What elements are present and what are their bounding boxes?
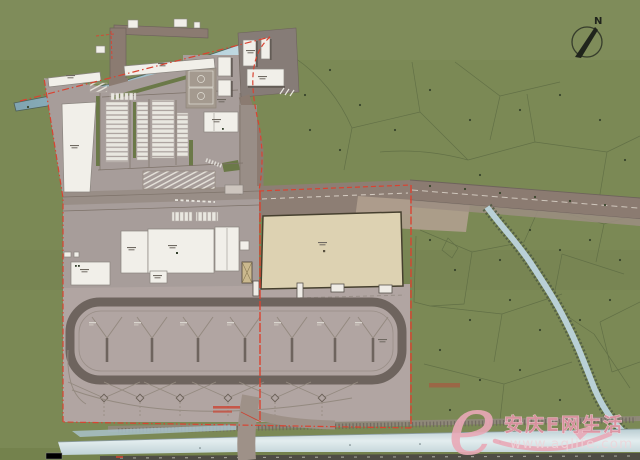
basketball-courts <box>186 68 216 108</box>
building-workshop <box>204 112 238 132</box>
watermark-url-text: www.aqlife.com <box>510 436 634 452</box>
river-crossing-road <box>246 396 251 460</box>
building-cluster-a <box>121 231 148 273</box>
site-plan-svg: N e 安庆E网生活 www.aqlife.com <box>0 0 640 460</box>
compass-north-label: N <box>594 16 602 27</box>
gatehouse-kiosk <box>242 262 252 283</box>
site-plan-page: N e 安庆E网生活 www.aqlife.com <box>0 0 640 460</box>
building-cluster-b <box>71 262 110 285</box>
watermark-brand-text: 安庆E网生活 <box>504 413 624 436</box>
building-station-house <box>148 229 214 273</box>
watermark-logo-icon: e <box>448 379 497 460</box>
building-long-west <box>62 102 96 192</box>
terminal-building <box>253 212 403 298</box>
